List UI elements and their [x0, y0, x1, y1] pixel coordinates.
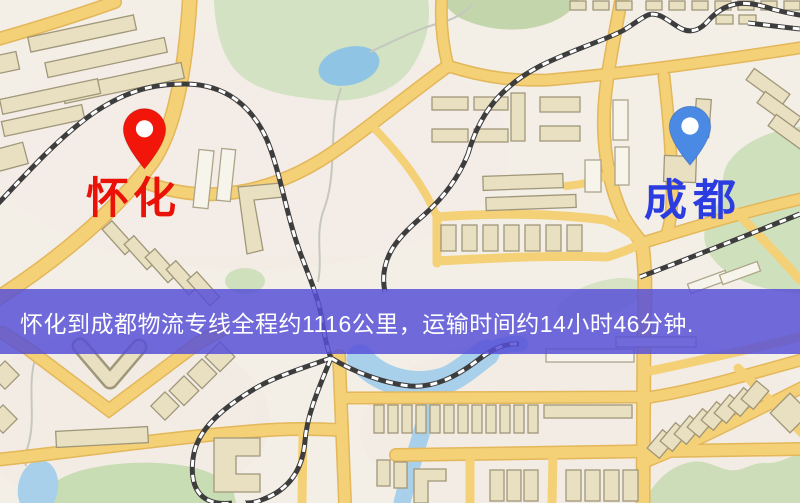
map-background	[0, 0, 800, 503]
route-banner: 怀化到成都物流专线全程约1116公里，运输时间约14小时46分钟.	[0, 289, 800, 354]
destination-label: 成都	[644, 180, 742, 223]
map-canvas[interactable]: 怀化 成都 怀化到成都物流专线全程约1116公里，运输时间约14小时46分钟.	[0, 0, 800, 503]
destination-pin-shape	[669, 106, 710, 165]
origin-label: 怀化	[86, 178, 180, 221]
origin-pin-shape	[123, 109, 165, 169]
origin-pin-icon[interactable]	[121, 107, 168, 171]
destination-pin-icon[interactable]	[667, 105, 713, 167]
route-banner-text: 怀化到成都物流专线全程约1116公里，运输时间约14小时46分钟.	[20, 305, 694, 339]
